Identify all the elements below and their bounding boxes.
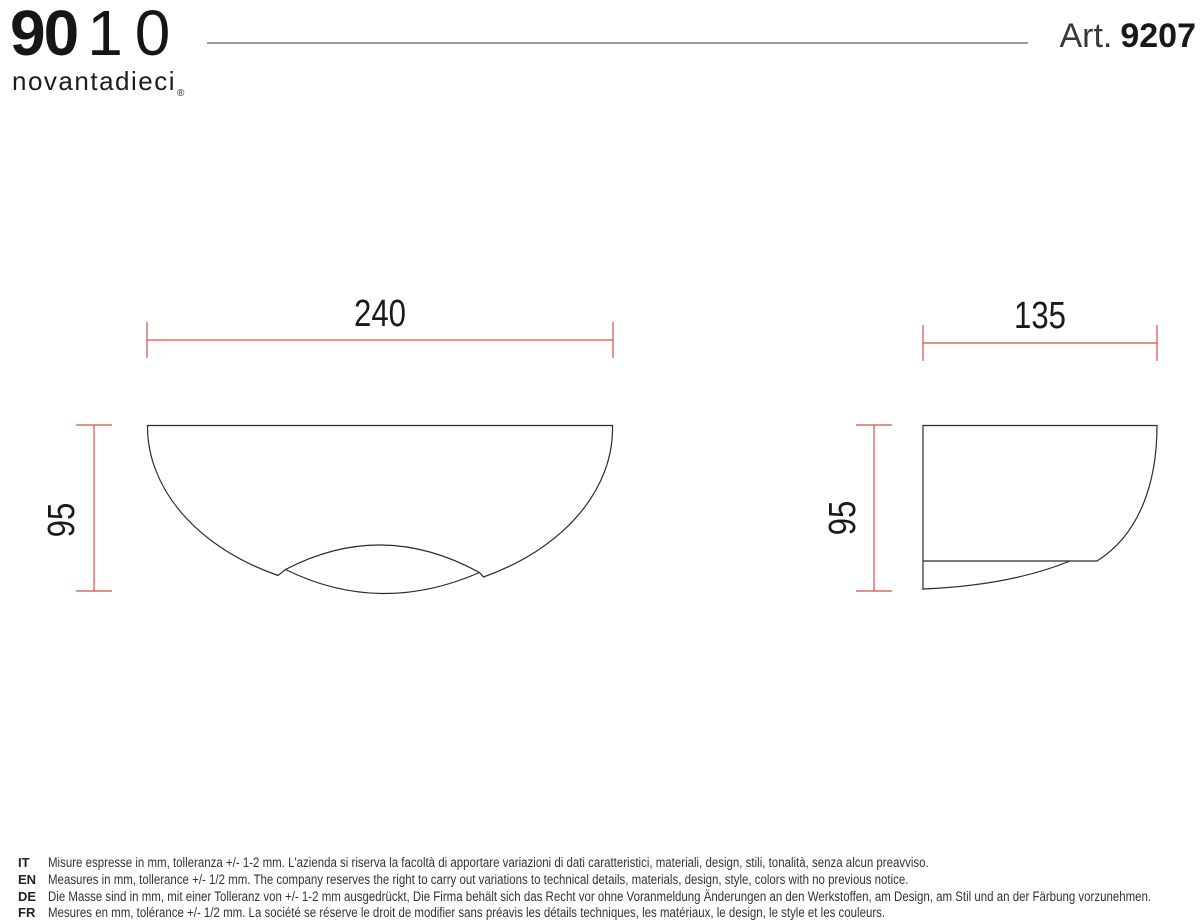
dimension-lines [76,322,1157,591]
side-view-drawing [923,426,1157,591]
note-lang-code-de: DE [18,888,48,905]
note-text-de: Die Masse sind in mm, mit einer Tolleran… [48,888,1151,905]
note-row-it: ITMisure espresse in mm, tolleranza +/- … [18,854,1084,871]
note-text-en: Measures in mm, tollerance +/- 1/2 mm. T… [48,871,908,888]
side-height-dim-value: 95 [823,481,863,555]
note-row-en: ENMeasures in mm, tollerance +/- 1/2 mm.… [18,871,1060,888]
side-view-outline [923,426,1157,591]
note-lang-code-it: IT [18,854,48,871]
datasheet-page: 9010 novantadieci® Art.9207 [0,0,1202,922]
note-row-fr: FRMesures en mm, tolérance +/- 1/2 mm. L… [18,904,1033,921]
front-view-outline [147,426,612,578]
note-lang-code-en: EN [18,871,48,888]
note-text-fr: Mesures en mm, tolérance +/- 1/2 mm. La … [48,904,885,921]
note-lang-code-fr: FR [18,904,48,921]
side-view-belly-curve [923,561,1070,589]
front-view-drawing [147,426,612,594]
front-height-dim-value: 95 [42,483,82,557]
note-row-de: DEDie Masse sind in mm, mit einer Toller… [18,888,1202,905]
technical-drawing-canvas [0,0,1202,922]
front-view-lens-lower-arc [286,570,480,594]
side-width-dim-value: 135 [999,296,1081,336]
front-width-dim-value: 240 [339,294,421,334]
note-text-it: Misure espresse in mm, tolleranza +/- 1-… [48,854,929,871]
